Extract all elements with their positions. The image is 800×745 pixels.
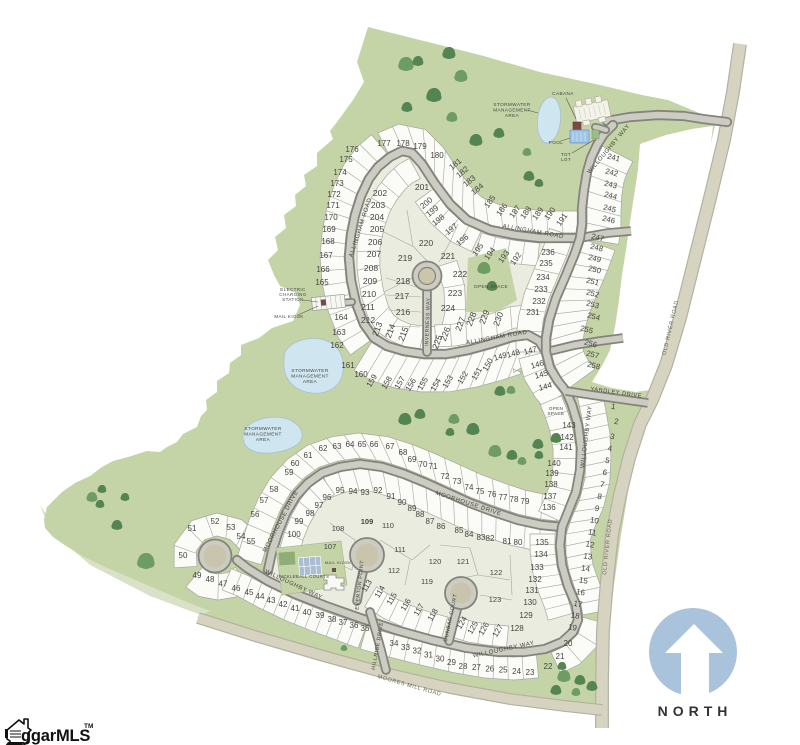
svg-text:204: 204	[370, 212, 385, 222]
svg-text:37: 37	[339, 618, 348, 627]
svg-text:121: 121	[457, 557, 470, 566]
svg-text:23: 23	[526, 668, 535, 677]
svg-text:54: 54	[237, 532, 246, 541]
svg-text:TM: TM	[84, 723, 93, 730]
svg-text:87: 87	[426, 517, 435, 526]
svg-text:34: 34	[390, 639, 399, 648]
svg-text:51: 51	[188, 524, 197, 533]
svg-text:95: 95	[336, 486, 345, 495]
svg-text:107: 107	[324, 542, 337, 551]
svg-text:231: 231	[526, 308, 540, 317]
svg-text:130: 130	[523, 598, 537, 607]
svg-text:205: 205	[370, 224, 385, 234]
svg-text:208: 208	[364, 263, 379, 273]
svg-text:96: 96	[323, 493, 332, 502]
svg-text:59: 59	[285, 468, 294, 477]
svg-text:83: 83	[477, 533, 486, 542]
svg-text:97: 97	[315, 501, 324, 510]
svg-text:STATION: STATION	[282, 297, 304, 302]
svg-text:48: 48	[206, 575, 215, 584]
svg-text:224: 224	[441, 303, 456, 313]
svg-text:36: 36	[350, 621, 359, 630]
svg-text:236: 236	[541, 248, 555, 257]
svg-text:179: 179	[413, 142, 427, 151]
svg-text:65: 65	[358, 440, 367, 449]
svg-text:89: 89	[408, 504, 417, 513]
svg-text:211: 211	[361, 302, 375, 312]
svg-text:86: 86	[437, 522, 446, 531]
svg-text:33: 33	[401, 643, 410, 652]
svg-text:24: 24	[512, 667, 521, 676]
svg-text:69: 69	[408, 455, 417, 464]
svg-text:81: 81	[503, 537, 512, 546]
svg-text:67: 67	[386, 442, 395, 451]
svg-text:70: 70	[419, 460, 428, 469]
svg-text:57: 57	[260, 496, 269, 505]
svg-text:221: 221	[441, 251, 456, 261]
svg-text:60: 60	[291, 459, 300, 468]
svg-text:53: 53	[227, 523, 236, 532]
svg-text:164: 164	[334, 313, 348, 322]
svg-text:MANAGEMENT: MANAGEMENT	[493, 107, 531, 112]
svg-text:92: 92	[374, 486, 383, 495]
svg-text:165: 165	[315, 278, 329, 287]
svg-text:173: 173	[330, 179, 344, 188]
svg-text:142: 142	[560, 433, 574, 442]
svg-text:LOT: LOT	[561, 157, 571, 162]
svg-text:140: 140	[547, 459, 561, 468]
svg-text:169: 169	[322, 225, 336, 234]
svg-text:22: 22	[544, 662, 553, 671]
svg-text:163: 163	[332, 328, 346, 337]
svg-text:66: 66	[370, 440, 379, 449]
svg-text:AREA: AREA	[505, 113, 520, 118]
svg-text:128: 128	[510, 624, 524, 633]
svg-text:77: 77	[499, 493, 508, 502]
svg-text:ggarMLS: ggarMLS	[21, 727, 90, 745]
svg-text:122: 122	[490, 568, 503, 577]
svg-text:202: 202	[373, 188, 388, 198]
svg-text:180: 180	[430, 151, 444, 160]
svg-text:235: 235	[539, 259, 553, 268]
svg-text:88: 88	[416, 510, 425, 519]
svg-text:25: 25	[499, 666, 508, 675]
svg-text:47: 47	[219, 580, 228, 589]
svg-text:MANAGEMENT: MANAGEMENT	[244, 431, 282, 436]
svg-text:STORMWATER: STORMWATER	[244, 426, 281, 431]
svg-text:93: 93	[361, 488, 370, 497]
svg-text:MAIL KIOSK: MAIL KIOSK	[325, 560, 352, 565]
svg-text:CABANA: CABANA	[552, 91, 574, 96]
svg-text:64: 64	[346, 440, 355, 449]
svg-text:27: 27	[472, 663, 481, 672]
svg-text:223: 223	[448, 288, 463, 298]
svg-text:50: 50	[179, 551, 188, 560]
svg-text:30: 30	[436, 654, 445, 663]
svg-text:110: 110	[382, 521, 394, 530]
svg-text:134: 134	[534, 550, 548, 559]
svg-text:49: 49	[193, 571, 202, 580]
svg-text:78: 78	[510, 495, 519, 504]
svg-text:21: 21	[556, 652, 565, 661]
svg-text:26: 26	[485, 664, 494, 673]
svg-text:35: 35	[361, 624, 370, 633]
svg-text:216: 216	[396, 307, 411, 317]
svg-text:73: 73	[453, 477, 462, 486]
svg-text:20: 20	[564, 639, 573, 648]
svg-text:131: 131	[525, 586, 539, 595]
svg-text:43: 43	[267, 596, 276, 605]
svg-text:111: 111	[394, 545, 405, 554]
svg-text:40: 40	[303, 608, 312, 617]
svg-text:166: 166	[316, 265, 330, 274]
svg-text:170: 170	[324, 213, 338, 222]
svg-text:82: 82	[486, 534, 495, 543]
svg-text:32: 32	[413, 647, 422, 656]
svg-text:STORMWATER: STORMWATER	[493, 102, 530, 107]
svg-text:201: 201	[415, 182, 430, 192]
svg-text:52: 52	[211, 517, 220, 526]
svg-text:176: 176	[345, 145, 359, 154]
svg-text:175: 175	[339, 155, 353, 164]
svg-text:220: 220	[419, 238, 434, 248]
svg-text:108: 108	[332, 524, 345, 533]
svg-text:120: 120	[429, 557, 442, 566]
svg-text:90: 90	[398, 498, 407, 507]
svg-text:OPEN SPACE: OPEN SPACE	[474, 284, 508, 289]
svg-text:80: 80	[514, 538, 523, 547]
svg-text:45: 45	[245, 588, 254, 597]
svg-text:74: 74	[465, 483, 474, 492]
svg-text:44: 44	[256, 592, 265, 601]
svg-text:71: 71	[429, 462, 438, 471]
svg-text:129: 129	[519, 611, 533, 620]
svg-text:143: 143	[562, 421, 576, 430]
svg-text:94: 94	[349, 487, 358, 496]
svg-text:MANAGEMENT: MANAGEMENT	[291, 373, 329, 378]
svg-text:219: 219	[398, 253, 413, 263]
svg-text:29: 29	[447, 658, 456, 667]
svg-text:234: 234	[536, 273, 550, 282]
svg-text:222: 222	[453, 269, 468, 279]
svg-text:NORTH: NORTH	[658, 703, 733, 719]
svg-text:137: 137	[543, 492, 557, 501]
svg-text:AREA: AREA	[303, 379, 318, 384]
svg-text:76: 76	[488, 490, 497, 499]
svg-text:217: 217	[395, 291, 410, 301]
svg-text:41: 41	[291, 604, 300, 613]
svg-text:174: 174	[333, 168, 347, 177]
svg-text:98: 98	[306, 509, 315, 518]
svg-text:123: 123	[489, 595, 502, 604]
svg-text:161: 161	[341, 361, 355, 370]
svg-text:160: 160	[354, 370, 368, 379]
svg-text:167: 167	[319, 251, 333, 260]
svg-text:AREA: AREA	[256, 437, 271, 442]
svg-text:31: 31	[424, 651, 433, 660]
svg-text:55: 55	[247, 537, 256, 546]
svg-text:39: 39	[316, 611, 325, 620]
svg-text:178: 178	[396, 139, 410, 148]
svg-text:139: 139	[545, 469, 559, 478]
svg-text:132: 132	[528, 575, 542, 584]
svg-text:38: 38	[328, 615, 337, 624]
svg-text:72: 72	[441, 472, 450, 481]
svg-text:206: 206	[368, 237, 383, 247]
svg-text:210: 210	[362, 289, 377, 299]
svg-text:61: 61	[304, 451, 313, 460]
svg-text:62: 62	[319, 444, 328, 453]
svg-text:56: 56	[251, 510, 260, 519]
svg-text:172: 172	[327, 190, 341, 199]
svg-text:75: 75	[476, 487, 485, 496]
svg-text:207: 207	[367, 249, 382, 259]
svg-text:171: 171	[326, 201, 340, 210]
svg-text:STORMWATER: STORMWATER	[291, 368, 328, 373]
svg-text:46: 46	[232, 584, 241, 593]
svg-text:99: 99	[295, 517, 304, 526]
svg-text:100: 100	[287, 530, 301, 539]
svg-text:109: 109	[361, 517, 374, 526]
svg-text:58: 58	[270, 485, 279, 494]
svg-text:136: 136	[542, 503, 556, 512]
svg-text:79: 79	[521, 497, 530, 506]
svg-text:63: 63	[333, 442, 342, 451]
svg-text:28: 28	[459, 662, 468, 671]
svg-text:91: 91	[387, 492, 396, 501]
svg-text:233: 233	[534, 285, 548, 294]
svg-text:PICKLEBALL COURTS: PICKLEBALL COURTS	[279, 574, 330, 579]
svg-text:42: 42	[279, 600, 288, 609]
svg-text:162: 162	[330, 341, 344, 350]
svg-text:119: 119	[421, 577, 433, 586]
svg-text:209: 209	[363, 276, 378, 286]
svg-text:SPACE: SPACE	[548, 411, 565, 416]
svg-text:203: 203	[371, 200, 386, 210]
svg-text:218: 218	[396, 276, 411, 286]
svg-text:84: 84	[465, 530, 474, 539]
svg-text:85: 85	[455, 526, 464, 535]
svg-text:135: 135	[535, 538, 549, 547]
svg-text:133: 133	[530, 563, 544, 572]
svg-text:138: 138	[544, 480, 558, 489]
svg-text:177: 177	[377, 139, 391, 148]
svg-text:141: 141	[559, 443, 573, 452]
svg-text:112: 112	[388, 566, 400, 575]
svg-text:168: 168	[321, 237, 335, 246]
svg-text:232: 232	[532, 297, 546, 306]
